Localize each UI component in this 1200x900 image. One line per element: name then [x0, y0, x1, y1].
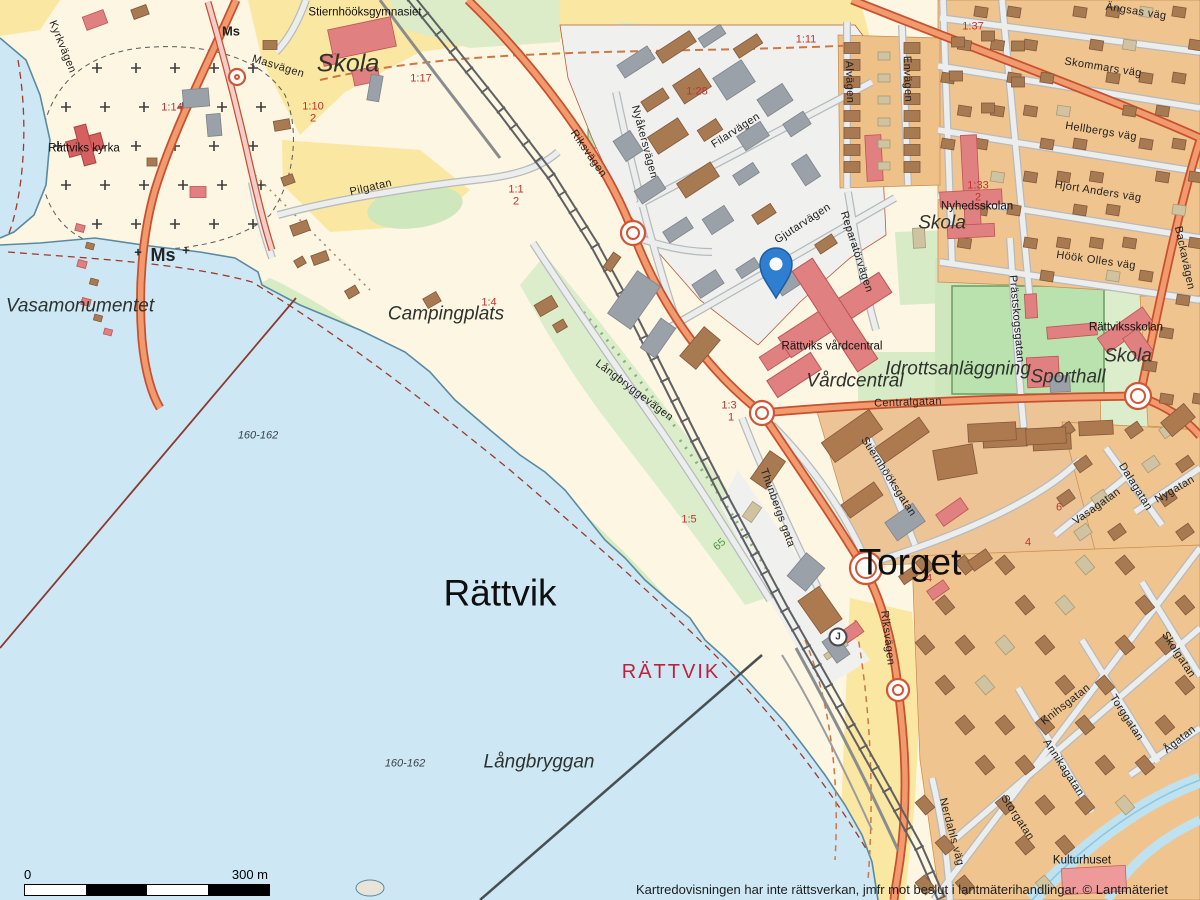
- scale-start-label: 0: [24, 867, 31, 882]
- scale-bar: [24, 884, 270, 896]
- map-canvas: [0, 0, 1200, 900]
- pin-hole: [770, 258, 783, 271]
- scale-end-label: 300 m: [232, 867, 268, 882]
- islet: [356, 880, 384, 896]
- map-disclaimer: Kartredovisningen har inte rättsverkan, …: [636, 882, 1168, 897]
- map-viewport[interactable]: StiernhööksgymnasietSkolaMsMasvägenKyrkv…: [0, 0, 1200, 900]
